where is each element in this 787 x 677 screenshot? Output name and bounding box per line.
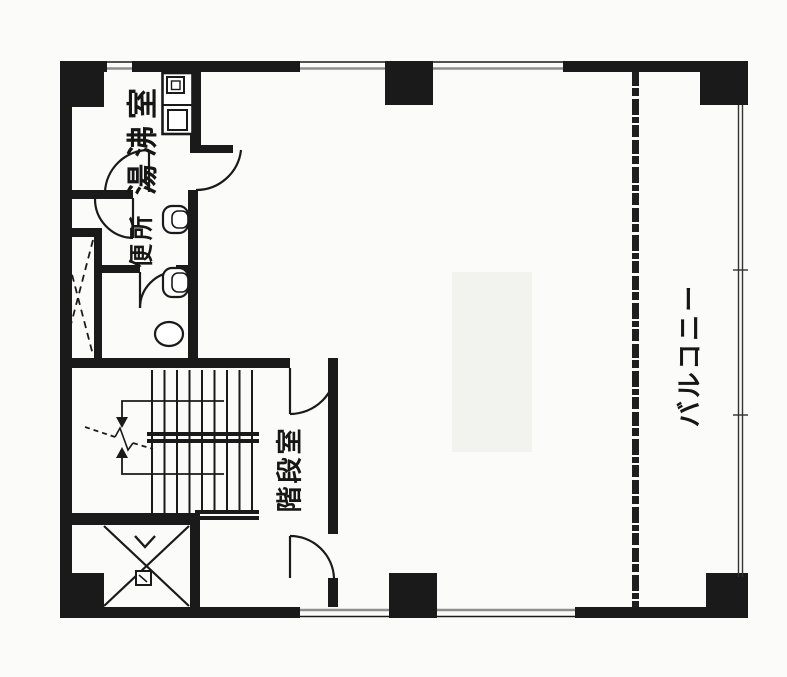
break-line-left xyxy=(85,427,115,437)
wall-elevator-top xyxy=(60,513,200,525)
sink-counter xyxy=(162,73,193,134)
column-bottom-left xyxy=(60,573,104,618)
elevator-x xyxy=(104,526,189,606)
balcony-rail xyxy=(733,105,748,577)
break-zigzag xyxy=(115,428,133,450)
wall-shaft-right xyxy=(94,237,102,358)
elevator-chevron-icon xyxy=(135,536,155,547)
wall-kitchenette-stub xyxy=(190,145,233,153)
wall-toilet-right xyxy=(188,190,198,358)
wall-shaft-top xyxy=(60,228,102,237)
door-arc-stair-bottom xyxy=(290,536,334,578)
stair-direction-arrow xyxy=(85,401,224,474)
urinal-2-bowl xyxy=(172,273,188,292)
stairs xyxy=(85,370,259,520)
wall-elevator-right xyxy=(190,525,200,607)
wall-stair-right-lower xyxy=(328,578,338,607)
arrowhead-up xyxy=(116,447,128,458)
column-top-right xyxy=(700,61,748,105)
scan-smudge xyxy=(452,272,532,452)
arrowhead-down xyxy=(116,417,128,428)
kitchenette-label: 湯沸室 xyxy=(118,81,163,195)
break-line-right xyxy=(133,443,153,449)
elevator-shaft xyxy=(104,526,189,606)
floor-plan: 湯沸室 便所 階段室 バルコニー xyxy=(0,0,787,677)
sink-basin xyxy=(168,110,187,130)
urinal-1-bowl xyxy=(172,211,188,228)
column-top-middle xyxy=(385,61,433,105)
stairwell-label: 階段室 xyxy=(270,425,307,512)
column-bottom-right xyxy=(706,573,748,618)
wall-stair-top xyxy=(60,358,290,368)
wc-toilet-bowl xyxy=(155,322,183,346)
wall-left xyxy=(60,61,72,618)
column-bottom-middle xyxy=(389,573,437,618)
door-arc-main-room xyxy=(196,150,241,190)
sink-small-unit-inner xyxy=(172,81,181,90)
toilet-label: 便所 xyxy=(122,212,157,268)
column-top-left xyxy=(60,61,104,107)
balcony-label: バルコニー xyxy=(670,283,707,427)
